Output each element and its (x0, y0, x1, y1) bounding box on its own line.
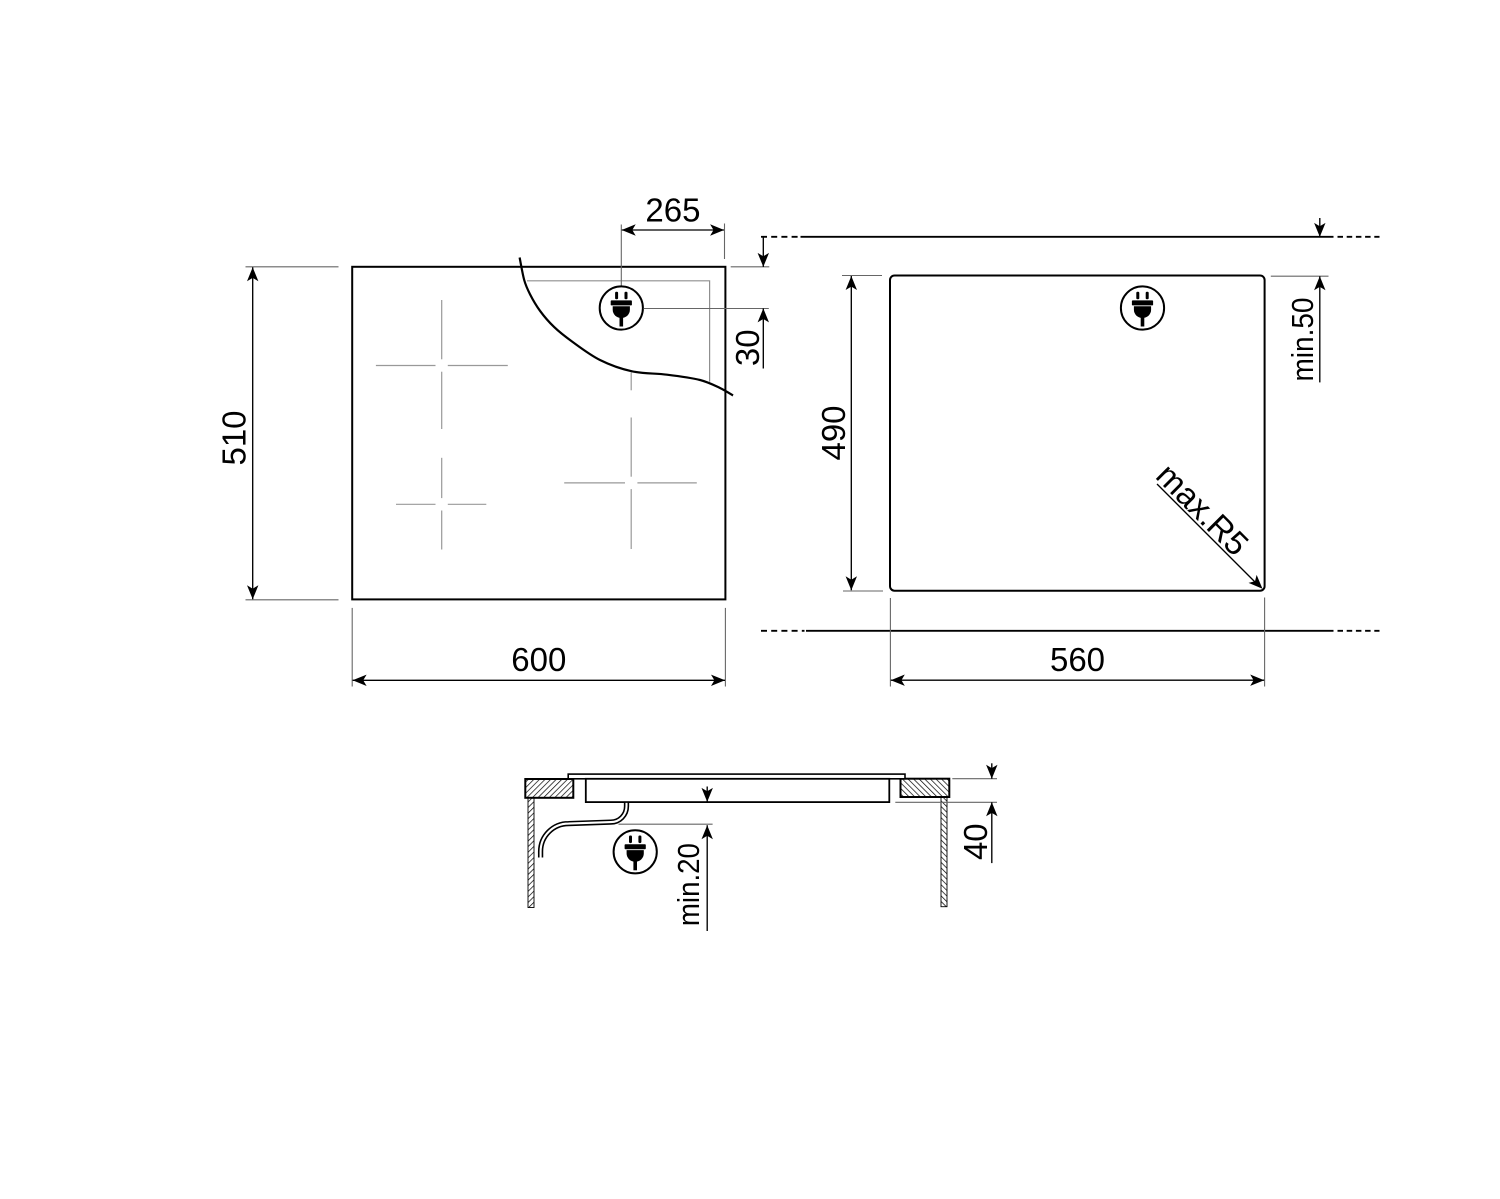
svg-text:510: 510 (216, 410, 253, 465)
svg-text:min.20: min.20 (671, 843, 706, 926)
svg-text:600: 600 (511, 641, 566, 678)
svg-text:30: 30 (729, 329, 766, 366)
svg-text:560: 560 (1050, 641, 1105, 678)
svg-text:265: 265 (645, 192, 700, 229)
svg-text:40: 40 (957, 823, 994, 860)
svg-text:min.50: min.50 (1285, 298, 1320, 382)
svg-text:490: 490 (815, 405, 852, 460)
